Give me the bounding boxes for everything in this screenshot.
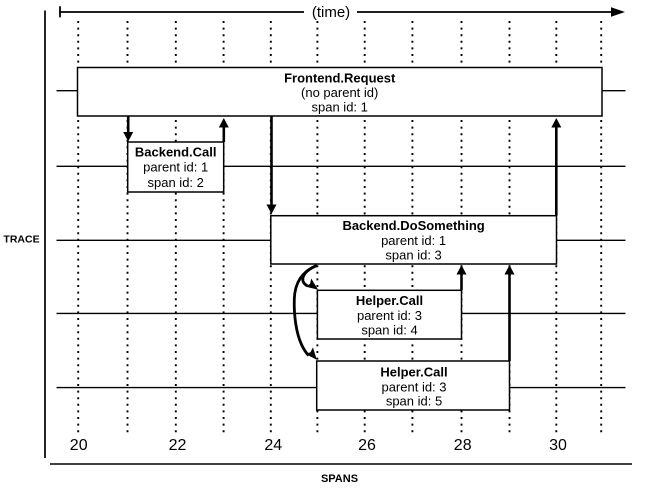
svg-text:(time): (time) (312, 4, 350, 21)
svg-text:28: 28 (454, 437, 472, 454)
svg-text:span id: 5: span id: 5 (386, 394, 442, 409)
svg-text:span id: 3: span id: 3 (385, 247, 441, 262)
svg-text:parent id: 3: parent id: 3 (381, 379, 446, 394)
svg-text:parent id: 3: parent id: 3 (357, 308, 422, 323)
svg-text:Backend.Call: Backend.Call (135, 144, 217, 159)
svg-text:parent id: 1: parent id: 1 (143, 160, 208, 175)
svg-text:22: 22 (169, 437, 187, 454)
svg-text:Helper.Call: Helper.Call (356, 293, 423, 308)
svg-text:Frontend.Request: Frontend.Request (284, 71, 396, 86)
svg-text:span id: 4: span id: 4 (361, 323, 417, 338)
svg-text:26: 26 (358, 437, 376, 454)
svg-text:span id: 2: span id: 2 (148, 175, 204, 190)
svg-text:span id: 1: span id: 1 (312, 100, 368, 115)
svg-text:24: 24 (264, 437, 282, 454)
svg-text:TRACE: TRACE (3, 234, 39, 246)
svg-text:SPANS: SPANS (321, 473, 358, 485)
svg-text:Helper.Call: Helper.Call (380, 365, 447, 380)
svg-text:parent id: 1: parent id: 1 (381, 233, 446, 248)
svg-text:20: 20 (70, 437, 88, 454)
svg-text:30: 30 (549, 437, 567, 454)
svg-text:(no parent id): (no parent id) (301, 85, 378, 100)
svg-text:Backend.DoSomething: Backend.DoSomething (342, 218, 484, 233)
